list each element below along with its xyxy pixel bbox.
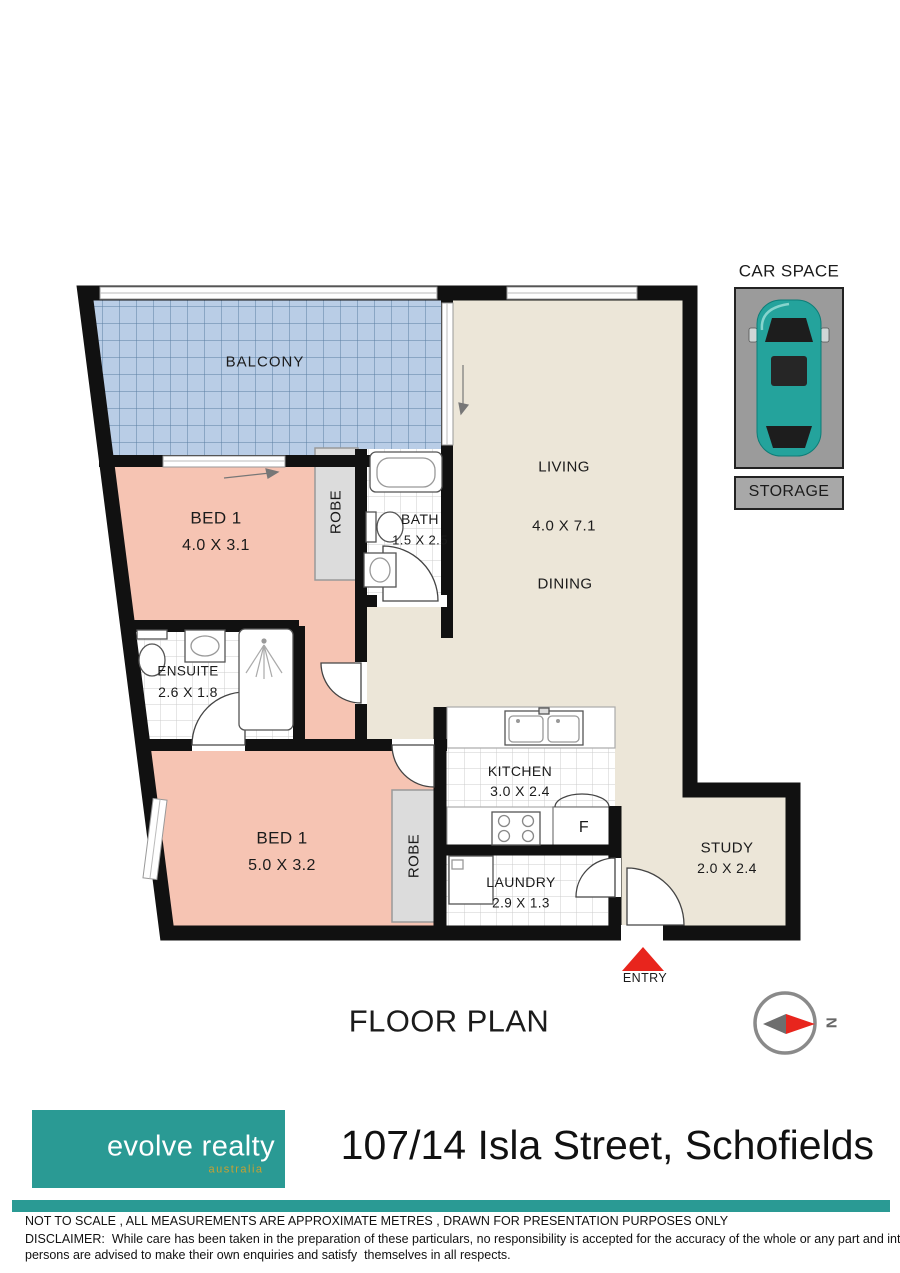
fridge-label: F xyxy=(579,820,589,836)
ensuite-dims: 2.6 X 1.8 xyxy=(158,685,218,699)
robe-bottom-label: ROBE xyxy=(407,834,422,878)
kitchen-dims: 3.0 X 2.4 xyxy=(490,784,550,798)
agency-logo-name: evolve realty xyxy=(107,1133,275,1162)
disclaimer-line-3: persons are advised to make their own en… xyxy=(25,1248,511,1262)
balcony-label: BALCONY xyxy=(226,355,305,370)
bed1-top-dims: 4.0 X 3.1 xyxy=(182,538,250,554)
dining-label: DINING xyxy=(538,577,593,592)
bathtub-icon xyxy=(370,452,442,492)
disclaimer-line-2: DISCLAIMER: While care has been taken in… xyxy=(25,1232,900,1246)
living-label: LIVING xyxy=(538,460,590,475)
kitchen-sink-icon xyxy=(505,708,583,745)
agency-logo-country: australia xyxy=(208,1165,263,1176)
entry-arrow-icon xyxy=(622,947,664,971)
study-label: STUDY xyxy=(701,841,754,856)
robe-top-label: ROBE xyxy=(329,490,344,534)
footer-divider-bar xyxy=(12,1200,890,1212)
bed1-top-label: BED 1 xyxy=(190,510,241,527)
bed1-bottom-label: BED 1 xyxy=(256,830,307,847)
floor-plan-graphic xyxy=(0,0,900,1273)
study-dims: 2.0 X 2.4 xyxy=(697,861,757,875)
ensuite-sink-icon xyxy=(185,630,225,662)
bed1-bottom-dims: 5.0 X 3.2 xyxy=(248,858,316,874)
bath-label: BATH xyxy=(401,512,439,526)
laundry-label: LAUNDRY xyxy=(486,875,555,889)
car-space-graphic xyxy=(735,288,843,509)
property-address: 107/14 Isla Street, Schofields xyxy=(341,1122,874,1169)
bath-sink-icon xyxy=(364,553,396,587)
stove-icon xyxy=(492,812,540,845)
storage-label: STORAGE xyxy=(749,484,830,500)
kitchen-label: KITCHEN xyxy=(488,764,552,778)
living-dims: 4.0 X 7.1 xyxy=(532,519,596,534)
disclaimer-line-1: NOT TO SCALE , ALL MEASUREMENTS ARE APPR… xyxy=(25,1214,728,1228)
compass-north-label: N xyxy=(824,1017,839,1028)
bath-dims: 1.5 X 2.5 xyxy=(392,534,448,547)
floor-plan-page: BALCONY BED 1 4.0 X 3.1 ROBE BATH 1.5 X … xyxy=(0,0,900,1273)
shower-icon xyxy=(239,629,293,730)
laundry-dims: 2.9 X 1.3 xyxy=(492,896,550,910)
car-icon xyxy=(749,300,829,456)
entry-label: ENTRY xyxy=(623,972,667,985)
car-space-title: CAR SPACE xyxy=(739,263,840,280)
ensuite-label: ENSUITE xyxy=(157,664,218,678)
compass-icon xyxy=(755,993,815,1053)
floor-plan-title: FLOOR PLAN xyxy=(349,1006,549,1037)
